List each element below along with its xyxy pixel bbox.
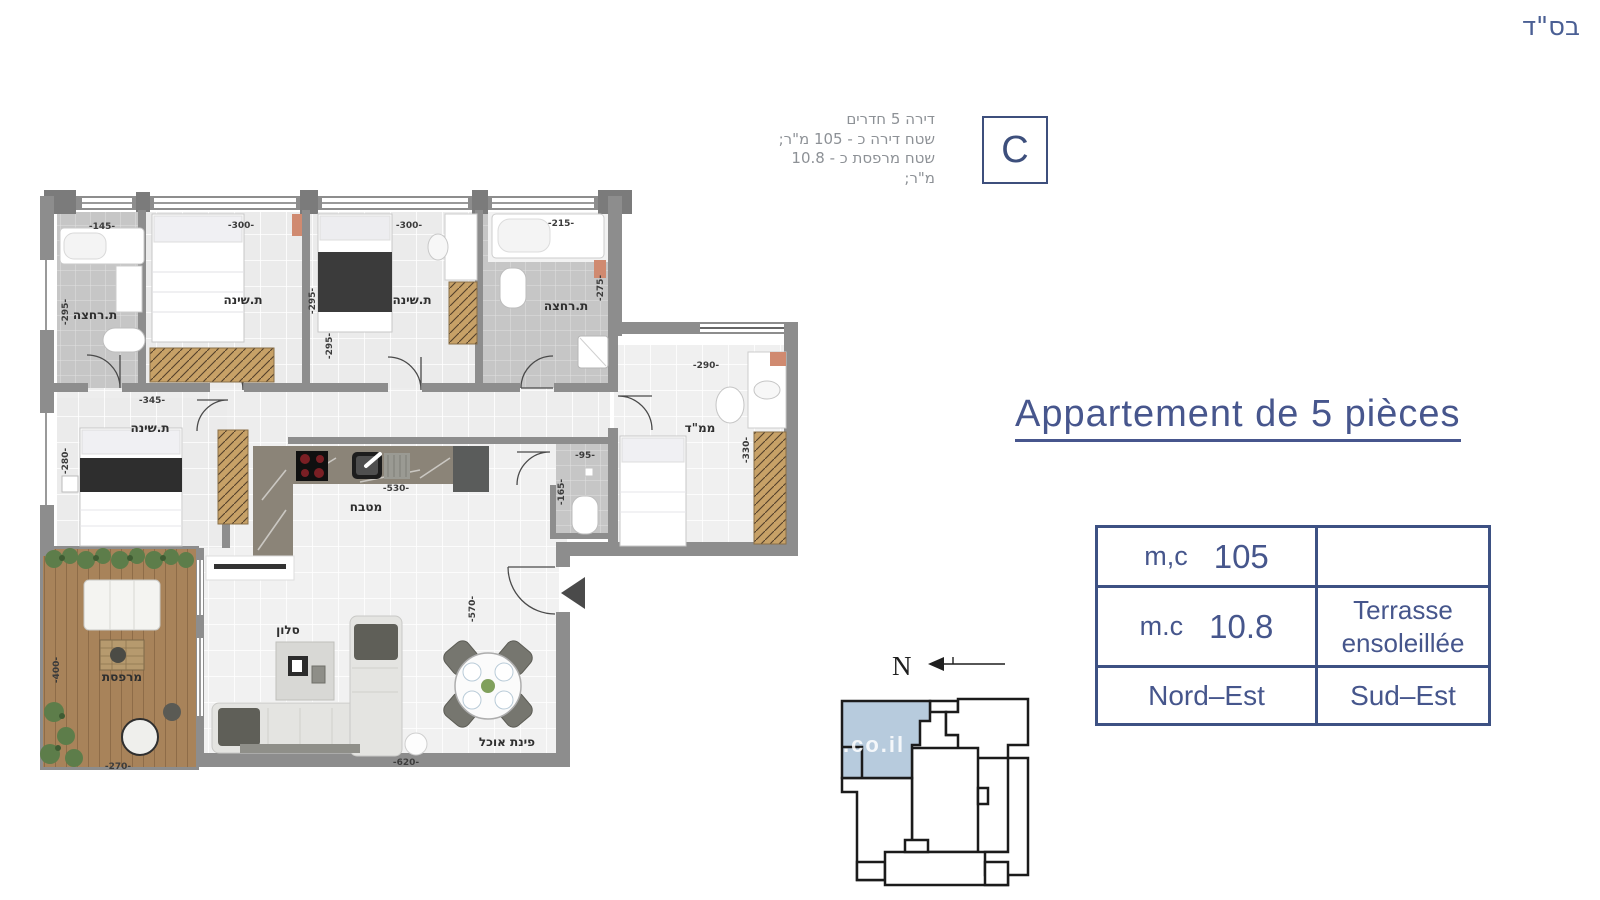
keyplan-watermark: .co.il [843, 732, 905, 757]
spec-area-cell: m,c 105 [1098, 528, 1318, 588]
terrace-desc-line2: ensoleillée [1342, 627, 1465, 660]
unit-info-line-3: שטח מרפסת כ - 10.8 מ"ר; [770, 149, 935, 188]
north-letter: N [892, 651, 912, 681]
building-key-plan: .co.il [842, 699, 1028, 885]
spec-empty-cell [1318, 528, 1488, 588]
spec-terrace-value: 10.8 [1209, 608, 1273, 646]
apartment-plan [40, 190, 798, 770]
spec-terrace-label: m.c [1140, 611, 1184, 642]
north-compass: N [892, 651, 1005, 681]
unit-letter: C [1001, 129, 1028, 172]
spec-terrace-desc-cell: Terrasse ensoleillée [1318, 588, 1488, 668]
spec-area-label: m,c [1144, 541, 1188, 572]
page-title: Appartement de 5 pièces [1015, 393, 1535, 436]
unit-info-line-2: שטח דירה כ - 105 מ"ר; [770, 130, 935, 150]
spec-area-value: 105 [1214, 538, 1269, 576]
unit-info-line-1: דירה 5 חדרים [770, 110, 935, 130]
spec-table: m,c 105 m.c 10.8 Terrasse ensoleillée No… [1095, 525, 1491, 726]
unit-info-block: דירה 5 חדרים שטח דירה כ - 105 מ"ר; שטח מ… [770, 110, 935, 188]
terrace-desc-line1: Terrasse [1342, 594, 1465, 627]
bsd-text: בס"ד [1460, 12, 1580, 42]
spec-orientation-left: Nord–Est [1098, 668, 1318, 723]
spec-orientation-right: Sud–Est [1318, 668, 1488, 723]
entry-arrow [561, 577, 585, 609]
spec-terrace-cell: m.c 10.8 [1098, 588, 1318, 668]
unit-letter-box: C [982, 116, 1048, 184]
north-arrowhead [928, 657, 944, 671]
